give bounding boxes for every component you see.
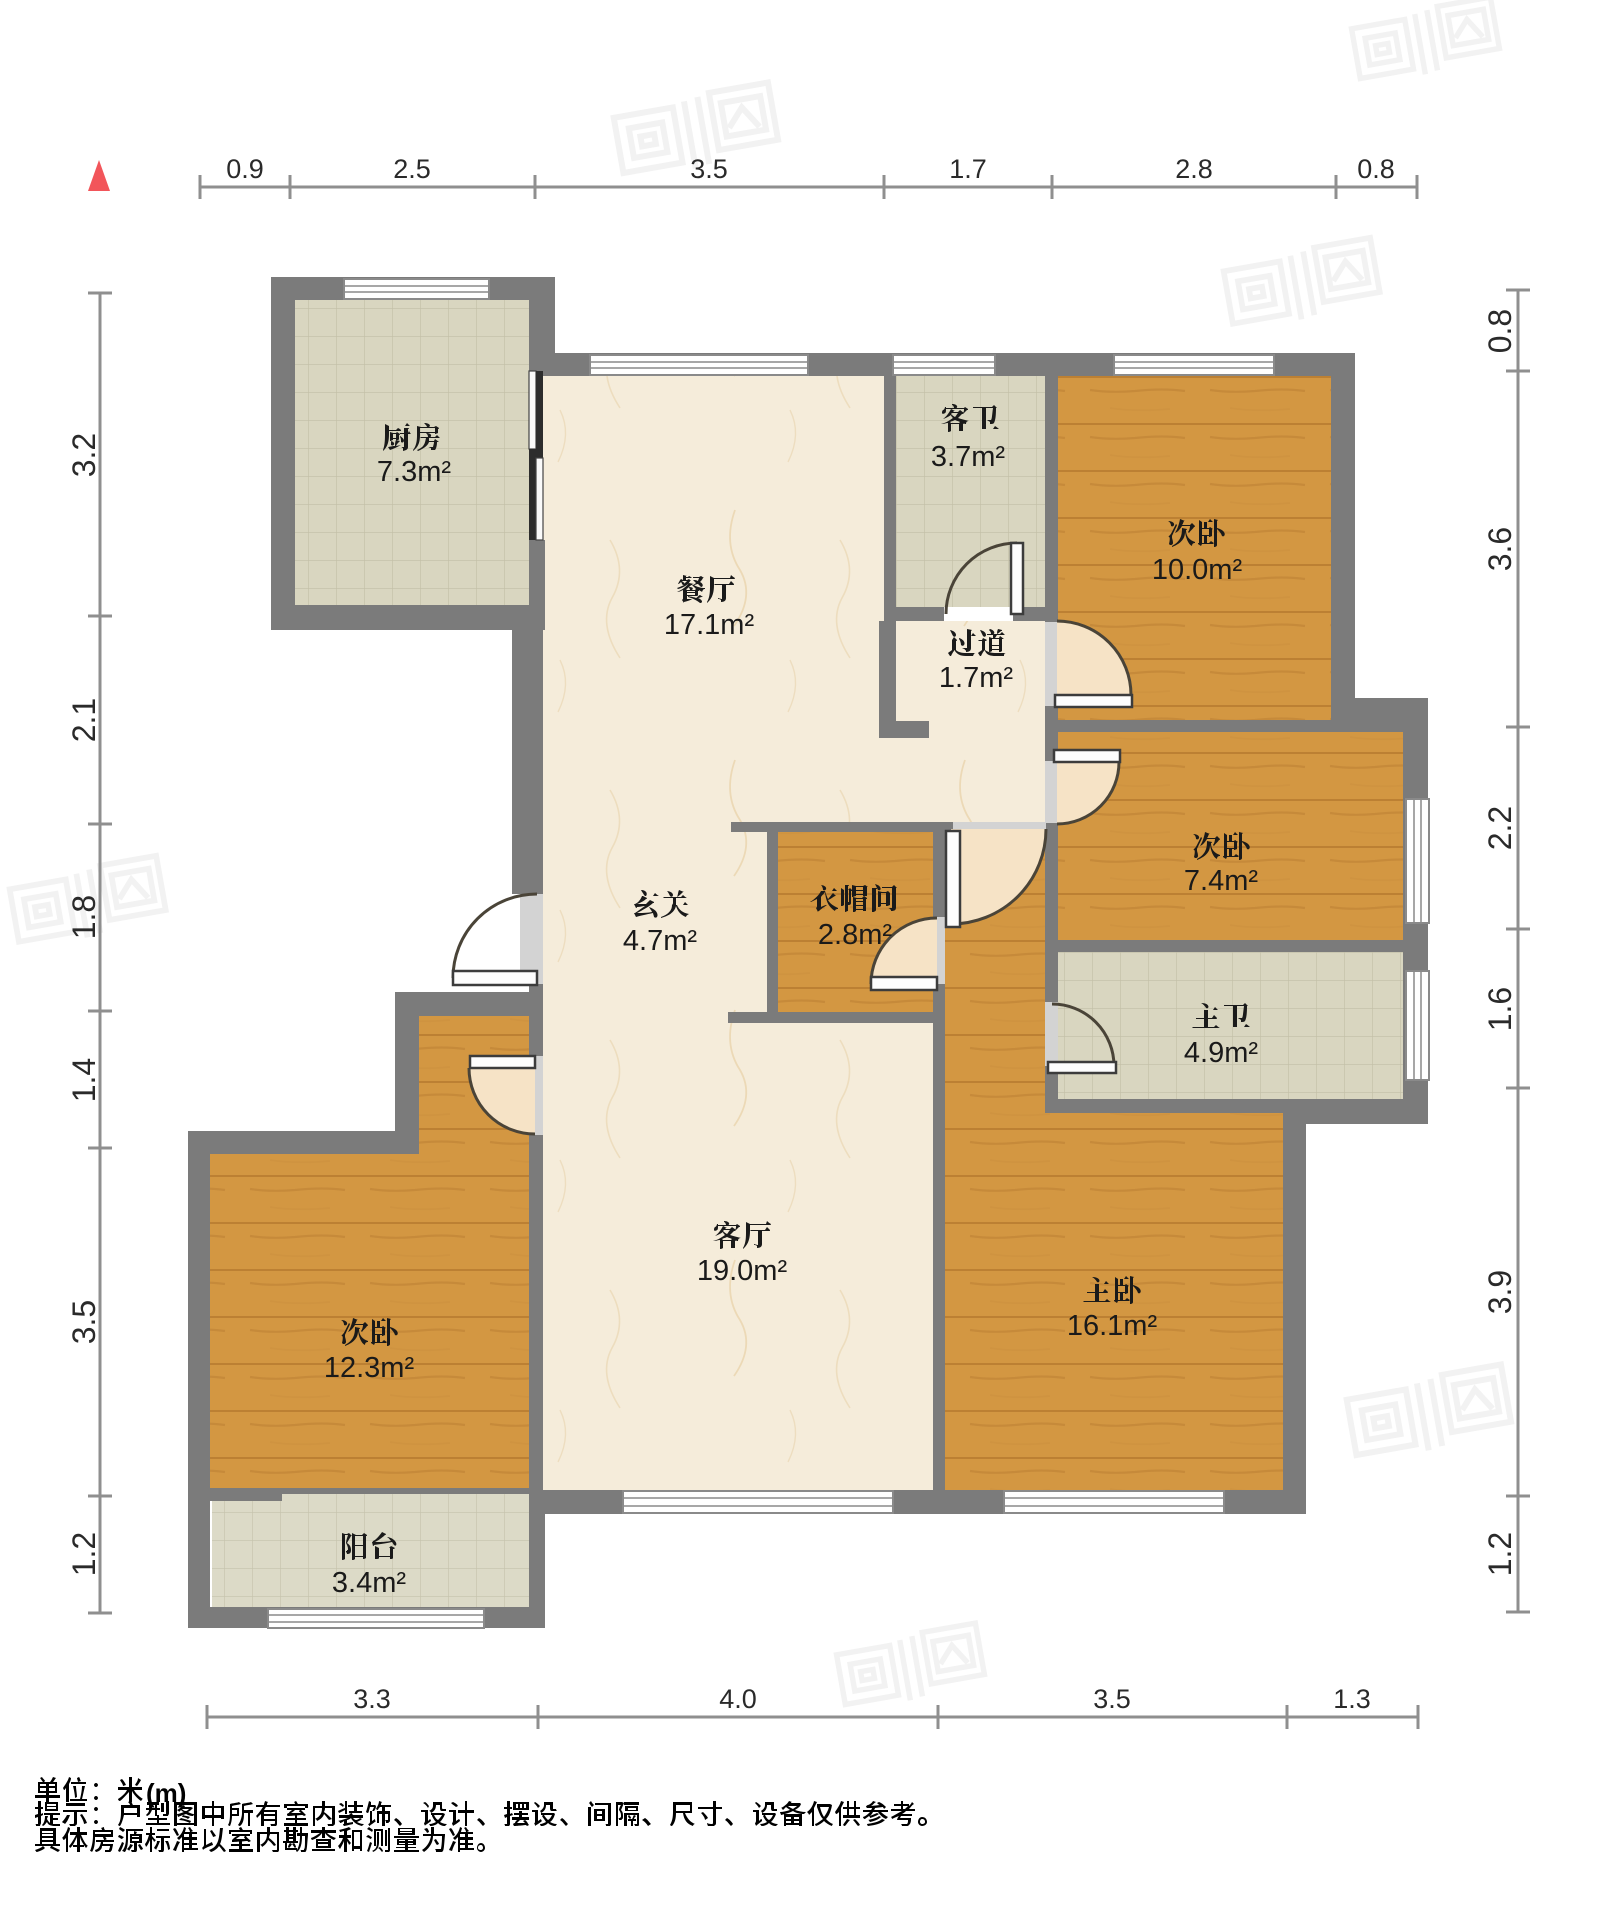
svg-text:3.7m²: 3.7m²: [931, 441, 1005, 473]
svg-text:0.8: 0.8: [1357, 154, 1395, 184]
svg-text:3.6: 3.6: [1482, 527, 1518, 571]
svg-text:1.6: 1.6: [1482, 987, 1518, 1031]
svg-text:2.2: 2.2: [1482, 806, 1518, 850]
svg-text:1.8: 1.8: [66, 895, 102, 939]
svg-text:2.5: 2.5: [393, 154, 431, 184]
svg-text:1.3: 1.3: [1333, 1684, 1371, 1714]
svg-text:4.9m²: 4.9m²: [1184, 1037, 1258, 1069]
svg-text:3.5: 3.5: [690, 154, 728, 184]
svg-text:3.4m²: 3.4m²: [332, 1567, 406, 1599]
svg-text:7.4m²: 7.4m²: [1184, 865, 1258, 897]
svg-text:16.1m²: 16.1m²: [1067, 1310, 1158, 1342]
svg-text:12.3m²: 12.3m²: [324, 1352, 415, 1384]
svg-text:3.9: 3.9: [1482, 1270, 1518, 1314]
svg-text:1.2: 1.2: [66, 1532, 102, 1576]
svg-text:1.7: 1.7: [949, 154, 987, 184]
svg-text:0.9: 0.9: [226, 154, 264, 184]
svg-text:4.7m²: 4.7m²: [623, 925, 697, 957]
svg-text:17.1m²: 17.1m²: [664, 609, 755, 641]
svg-text:1.7m²: 1.7m²: [939, 662, 1013, 694]
svg-text:3.2: 3.2: [66, 433, 102, 477]
svg-text:2.1: 2.1: [66, 698, 102, 742]
svg-text:3.5: 3.5: [1093, 1684, 1131, 1714]
svg-text:3.3: 3.3: [353, 1684, 391, 1714]
svg-text:2.8m²: 2.8m²: [818, 919, 892, 951]
svg-text:3.5: 3.5: [66, 1300, 102, 1344]
svg-text:10.0m²: 10.0m²: [1152, 554, 1243, 586]
svg-text:19.0m²: 19.0m²: [697, 1255, 788, 1287]
svg-text:7.3m²: 7.3m²: [377, 456, 451, 488]
svg-text:2.8: 2.8: [1175, 154, 1213, 184]
svg-text:0.8: 0.8: [1482, 309, 1518, 353]
svg-text:1.2: 1.2: [1482, 1532, 1518, 1576]
svg-text:4.0: 4.0: [719, 1684, 757, 1714]
svg-text:1.4: 1.4: [66, 1058, 102, 1102]
